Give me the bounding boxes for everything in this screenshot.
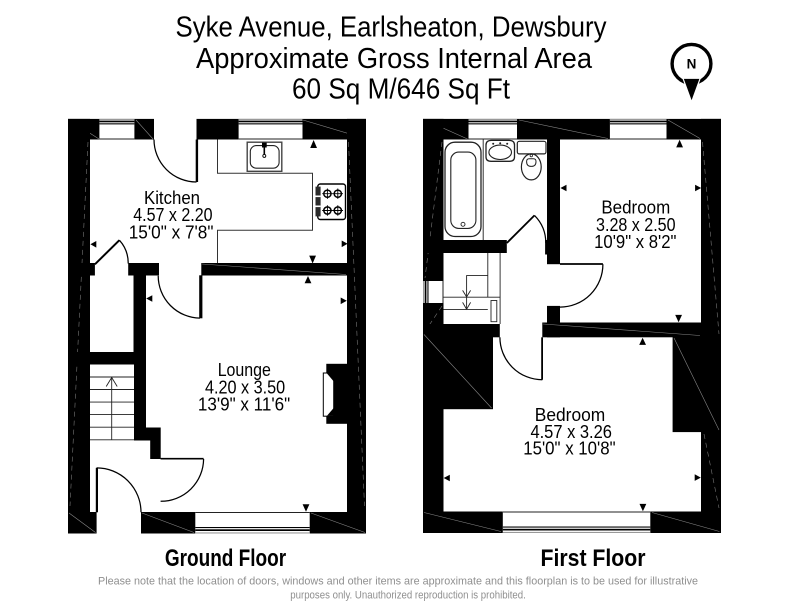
svg-text:15'0" x 7'8": 15'0" x 7'8" [129,222,214,242]
svg-text:purposes only. Unauthorized re: purposes only. Unauthorized reproduction… [290,590,526,602]
svg-text:13'9" x 11'6": 13'9" x 11'6" [198,395,290,415]
svg-text:15'0" x 10'8": 15'0" x 10'8" [523,439,615,459]
svg-text:N: N [687,57,697,72]
svg-text:Ground Floor: Ground Floor [165,545,286,572]
svg-text:10'9" x 8'2": 10'9" x 8'2" [594,232,676,252]
svg-text:60 Sq M/646 Sq Ft: 60 Sq M/646 Sq Ft [292,73,510,105]
svg-text:First Floor: First Floor [541,545,646,572]
svg-text:Approximate Gross Internal Are: Approximate Gross Internal Area [196,43,593,75]
svg-text:Please note that the location: Please note that the location of doors, … [98,576,698,588]
svg-text:Syke Avenue, Earlsheaton, Dews: Syke Avenue, Earlsheaton, Dewsbury [176,12,607,44]
